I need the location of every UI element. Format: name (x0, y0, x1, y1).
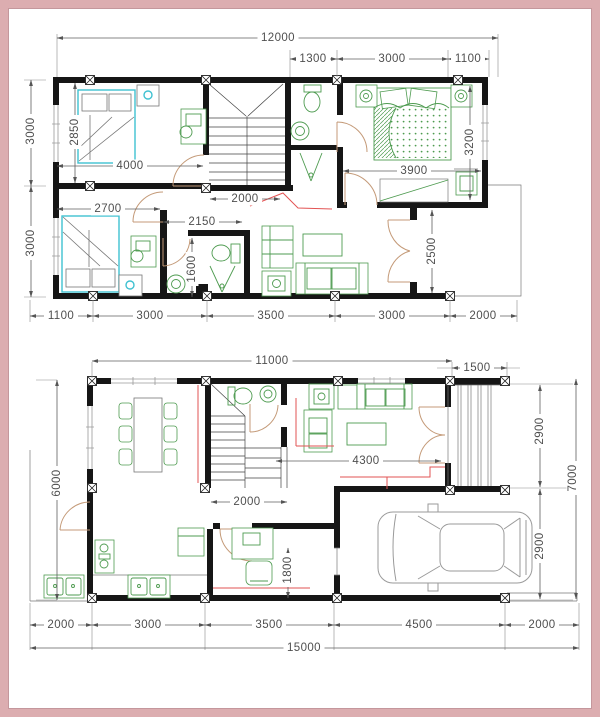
svg-text:3000: 3000 (378, 53, 405, 65)
bed-icon (62, 216, 119, 292)
door-swing-icon (419, 407, 445, 463)
sofa-icon (296, 263, 368, 294)
dim-label-3000: 3000 (25, 226, 38, 260)
dim-label-4000: 4000 (113, 160, 147, 173)
dim-label-2000: 2000 (230, 496, 264, 509)
dim-label-2850: 2850 (69, 115, 82, 149)
toilet-icon (212, 244, 240, 263)
sink-icon (167, 275, 185, 293)
coffee-table-icon (262, 271, 291, 296)
svg-text:2500: 2500 (426, 237, 438, 264)
kitchen-sink-icon (44, 575, 84, 598)
dim-label-1800: 1800 (282, 553, 295, 587)
svg-text:3900: 3900 (400, 165, 427, 177)
dim-label-15000: 15000 (284, 642, 325, 655)
svg-text:2900: 2900 (534, 417, 546, 444)
dim-label-3900: 3900 (397, 165, 431, 178)
svg-text:1500: 1500 (463, 362, 490, 374)
kitchen-sink-icon (128, 575, 170, 598)
dim-label-2000: 2000 (44, 619, 78, 632)
svg-text:1800: 1800 (282, 556, 294, 583)
svg-text:2850: 2850 (69, 118, 81, 145)
dimension-lines (30, 361, 579, 648)
toilet-icon (228, 387, 252, 405)
dim-label-3000: 3000 (131, 619, 165, 632)
svg-text:3500: 3500 (257, 310, 284, 322)
floor-plan-sheet: 1200013003000110030003000285040002700215… (0, 0, 600, 717)
dim-label-12000: 12000 (258, 32, 299, 45)
dim-label-3000: 3000 (133, 310, 167, 323)
svg-text:2000: 2000 (233, 496, 260, 508)
door-swing-icon (250, 404, 278, 432)
plan-drawing: 1200013003000110030003000285040002700215… (0, 0, 600, 717)
svg-text:2000: 2000 (469, 310, 496, 322)
sofa-icon (338, 384, 412, 409)
svg-text:4500: 4500 (405, 619, 432, 631)
dining-table-icon (119, 398, 177, 472)
svg-text:3000: 3000 (25, 229, 37, 256)
dim-label-2000: 2000 (466, 310, 500, 323)
coffee-table-icon (303, 234, 342, 256)
stairs-icon (209, 84, 285, 185)
dim-label-3000: 3000 (375, 53, 409, 66)
toilet-icon (304, 85, 321, 112)
dim-label-7000: 7000 (567, 461, 580, 495)
svg-text:4300: 4300 (352, 455, 379, 467)
dim-label-1100: 1100 (44, 310, 78, 323)
dim-label-1600: 1600 (186, 252, 199, 286)
dim-label-3000: 3000 (25, 114, 38, 148)
red-guides (250, 193, 332, 209)
bed-icon (356, 85, 472, 160)
shower-icon (300, 153, 322, 181)
nightstand-icon (137, 85, 159, 106)
svg-text:6000: 6000 (51, 469, 63, 496)
svg-text:3500: 3500 (255, 619, 282, 631)
window-icon (52, 218, 60, 275)
dim-label-3000: 3000 (375, 310, 409, 323)
desk-icon (454, 169, 478, 195)
desk-icon (180, 109, 206, 144)
nightstand-icon (119, 275, 142, 296)
wardrobe-icon (380, 179, 448, 202)
desk-icon (131, 236, 156, 267)
coffee-table-icon (347, 423, 386, 445)
svg-text:1600: 1600 (186, 255, 198, 282)
dim-label-2700: 2700 (91, 203, 125, 216)
svg-text:2150: 2150 (188, 216, 215, 228)
sofa-icon (262, 226, 293, 268)
door-swing-icon (345, 173, 377, 205)
dim-label-2900: 2900 (534, 529, 547, 563)
dim-label-3500: 3500 (252, 619, 286, 632)
dim-label-2150: 2150 (185, 216, 219, 229)
sink-icon (291, 122, 309, 140)
svg-text:7000: 7000 (567, 464, 579, 491)
dim-label-1100: 1100 (451, 53, 485, 66)
svg-text:2900: 2900 (534, 532, 546, 559)
window-icon (52, 105, 60, 162)
svg-text:2000: 2000 (47, 619, 74, 631)
door-swing-icon (133, 192, 163, 222)
desk-icon (232, 528, 273, 585)
svg-text:2000: 2000 (231, 193, 258, 205)
dim-label-3500: 3500 (254, 310, 288, 323)
dim-label-2000: 2000 (228, 193, 262, 206)
dim-label-2500: 2500 (426, 234, 439, 268)
stove-icon (95, 540, 114, 573)
porch-columns (448, 385, 507, 486)
door-swing-icon (388, 220, 410, 282)
svg-text:2000: 2000 (528, 619, 555, 631)
dim-label-3200: 3200 (464, 125, 477, 159)
stairs-icon (211, 384, 287, 488)
dim-label-11000: 11000 (252, 355, 293, 368)
window-icon (111, 377, 177, 385)
dim-label-4300: 4300 (349, 455, 383, 468)
dim-label-1500: 1500 (460, 362, 494, 375)
svg-text:3000: 3000 (136, 310, 163, 322)
dim-label-2000: 2000 (525, 619, 559, 632)
svg-text:3000: 3000 (378, 310, 405, 322)
svg-text:1300: 1300 (299, 53, 326, 65)
extension-lines (30, 362, 579, 650)
svg-text:3000: 3000 (134, 619, 161, 631)
fridge-icon (178, 528, 204, 556)
ground-floor-plan: 1100015006000290029007000430020001800200… (30, 355, 580, 655)
dim-label-4500: 4500 (402, 619, 436, 632)
door-swing-icon (60, 502, 90, 530)
shower-icon (210, 266, 235, 292)
window-icon (86, 406, 94, 469)
svg-text:12000: 12000 (261, 32, 295, 44)
svg-text:4000: 4000 (116, 160, 143, 172)
dim-label-1300: 1300 (296, 53, 330, 66)
svg-text:2700: 2700 (94, 203, 121, 215)
first-floor-plan: 1200013003000110030003000285040002700215… (24, 32, 521, 323)
svg-text:15000: 15000 (287, 642, 321, 654)
window-icon (481, 105, 489, 160)
svg-text:1100: 1100 (48, 310, 74, 322)
bed-icon (78, 90, 135, 163)
door-swing-icon (173, 155, 204, 186)
svg-text:3000: 3000 (25, 117, 37, 144)
car-icon (378, 504, 532, 591)
sink-icon (260, 386, 276, 402)
dim-label-2900: 2900 (534, 414, 547, 448)
dim-label-6000: 6000 (51, 466, 64, 500)
svg-text:11000: 11000 (255, 355, 288, 367)
svg-text:1100: 1100 (455, 53, 481, 65)
svg-text:3200: 3200 (464, 128, 476, 155)
plant-table-icon (309, 384, 334, 409)
